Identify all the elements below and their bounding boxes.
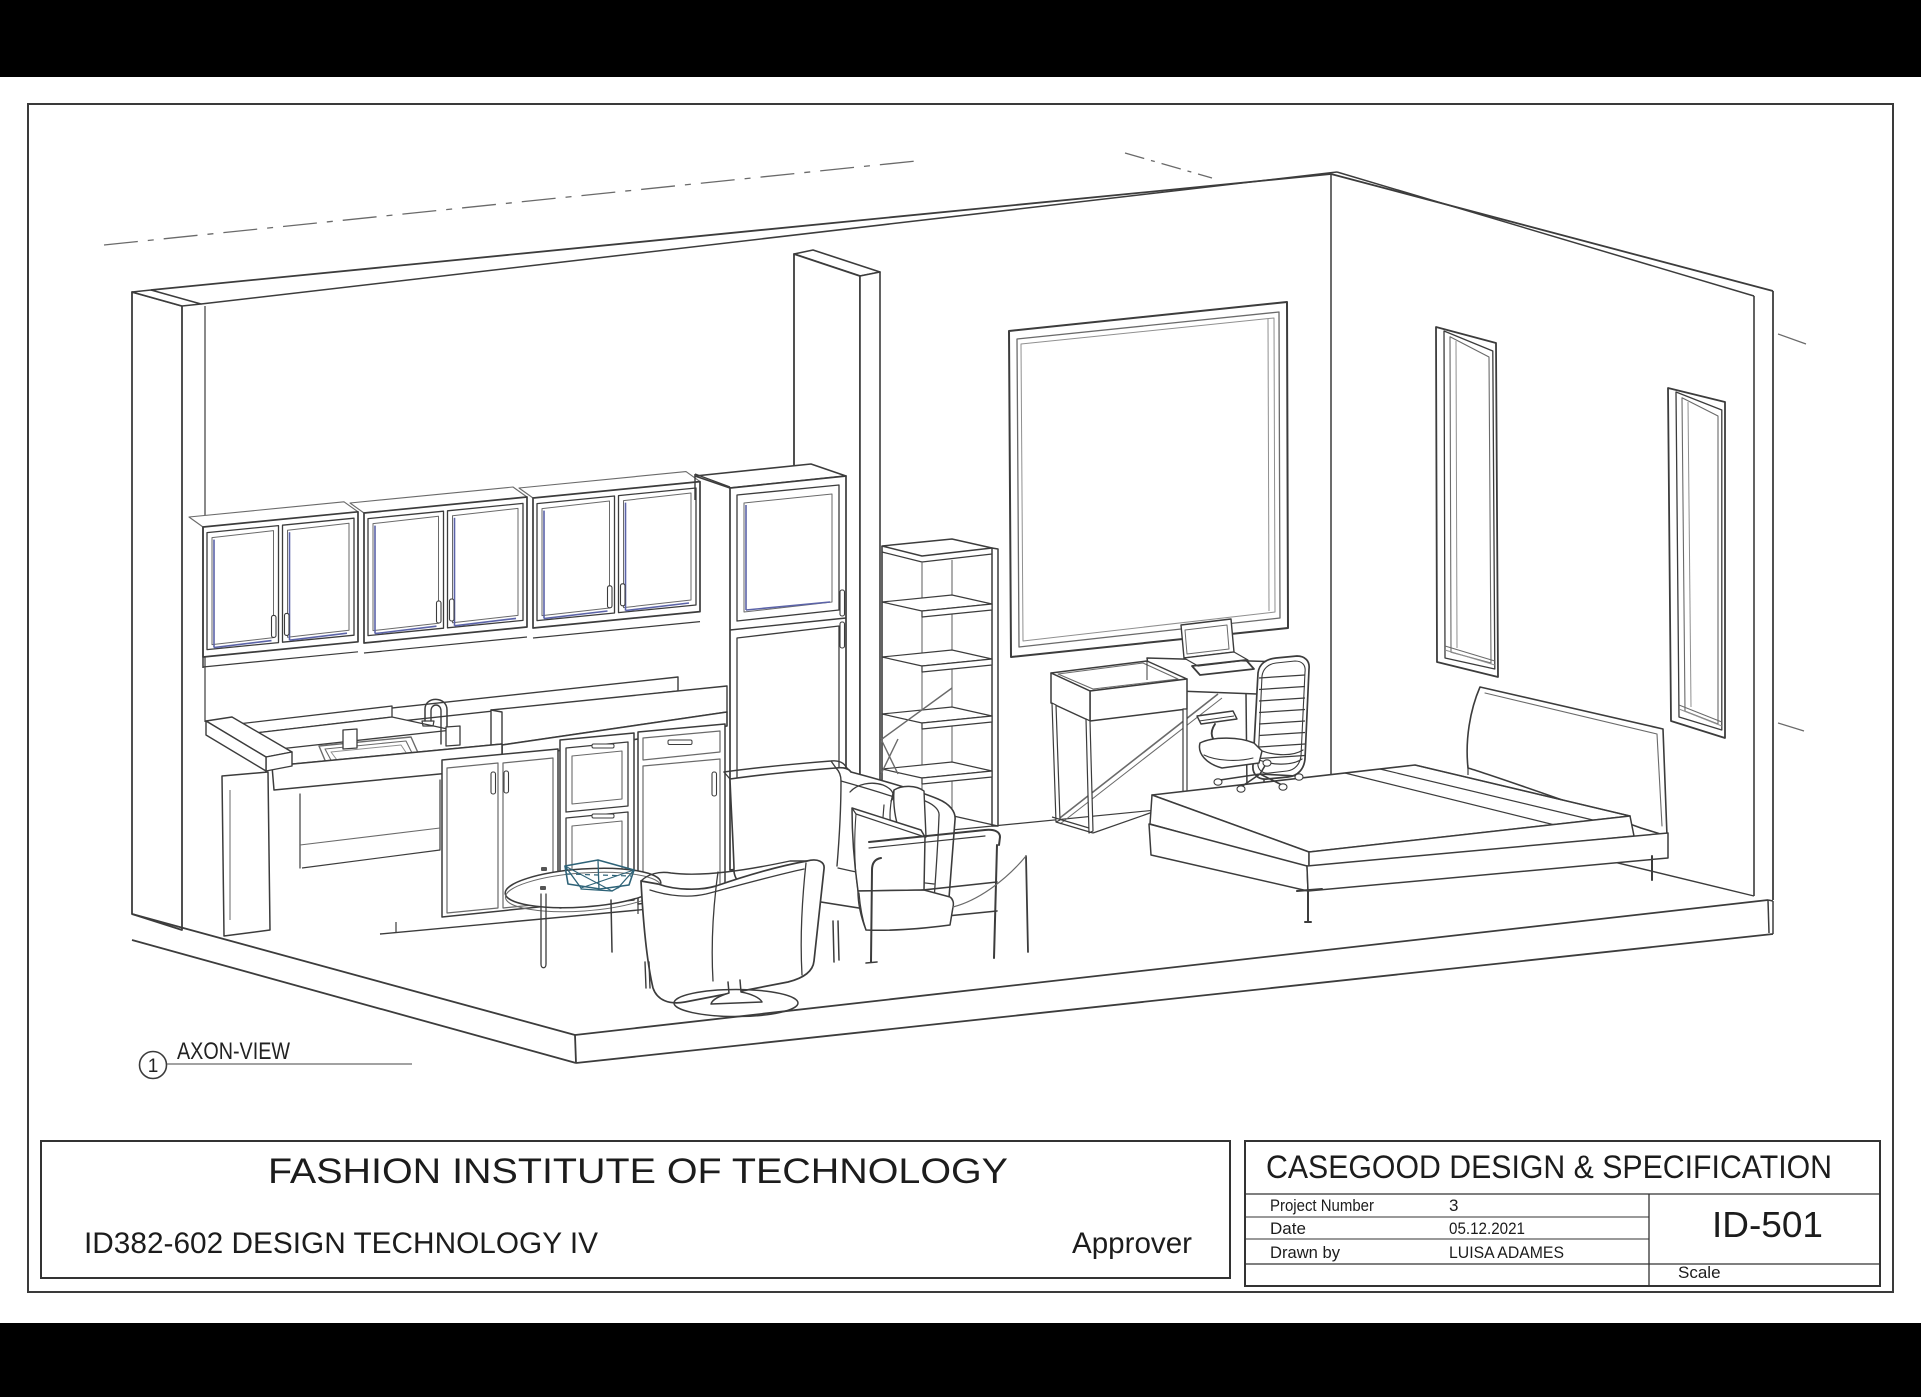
svg-text:AXON-VIEW: AXON-VIEW [177, 1038, 290, 1065]
svg-text:3: 3 [1449, 1196, 1458, 1215]
svg-text:05.12.2021: 05.12.2021 [1449, 1219, 1525, 1238]
svg-text:Drawn by: Drawn by [1270, 1243, 1340, 1262]
svg-text:LUISA ADAMES: LUISA ADAMES [1449, 1243, 1564, 1262]
svg-text:Approver: Approver [1072, 1227, 1192, 1260]
svg-text:CASEGOOD DESIGN & SPECIFICATIO: CASEGOOD DESIGN & SPECIFICATION [1266, 1149, 1832, 1185]
svg-text:1: 1 [148, 1056, 159, 1077]
svg-text:Project Number: Project Number [1270, 1196, 1374, 1215]
svg-text:Date: Date [1270, 1219, 1306, 1238]
svg-text:ID-501: ID-501 [1712, 1204, 1823, 1245]
svg-text:FASHION INSTITUTE OF TECHNOLOG: FASHION INSTITUTE OF TECHNOLOGY [268, 1152, 1008, 1191]
svg-text:Scale: Scale [1678, 1263, 1721, 1282]
svg-text:ID382-602 DESIGN TECHNOLOGY IV: ID382-602 DESIGN TECHNOLOGY IV [84, 1227, 598, 1260]
